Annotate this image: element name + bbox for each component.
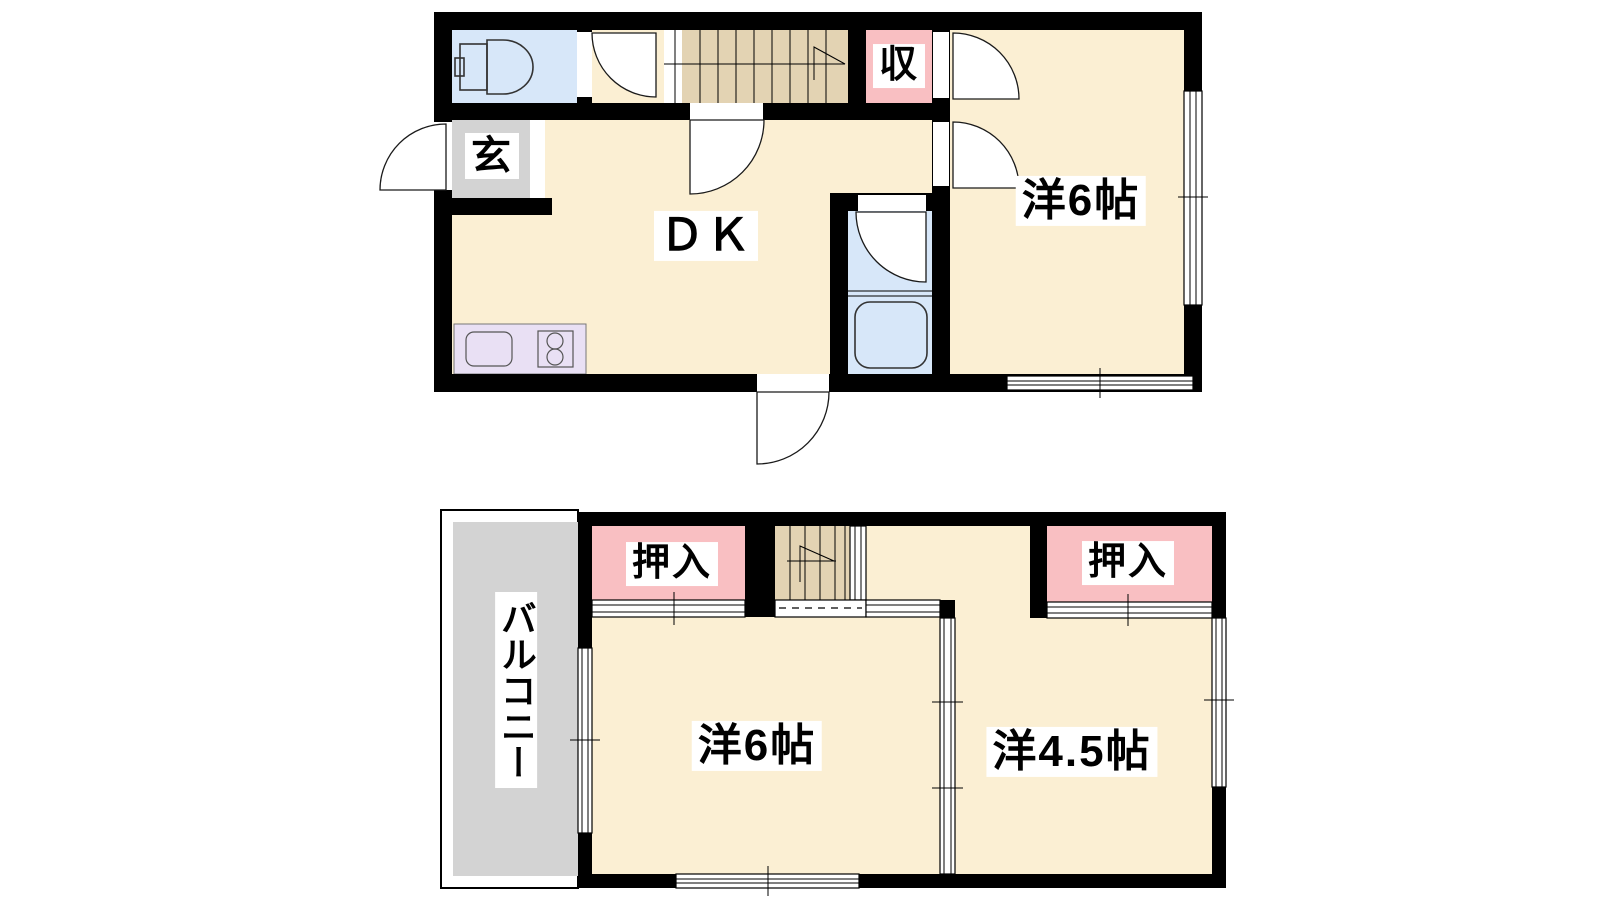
closet-right-sliding-door xyxy=(1047,602,1212,618)
western45-label: 洋4.5帖 xyxy=(986,727,1157,777)
western45-side-window xyxy=(1212,618,1226,787)
stair-rail-strip xyxy=(850,526,866,600)
staircase-first-floor xyxy=(682,30,848,103)
entrance-bottom-wall xyxy=(452,198,552,215)
staircase-second-floor xyxy=(775,526,850,600)
stairs-landing-strip xyxy=(664,30,682,103)
dk-label: ＤＫ xyxy=(654,211,758,261)
toilet-bottom-wall xyxy=(434,103,592,120)
entrance-label: 玄 xyxy=(465,133,519,179)
storage-label: 収 xyxy=(873,44,925,88)
closet-left-sliding-door xyxy=(592,600,745,617)
closet-right-label: 押入 xyxy=(1082,541,1174,585)
hall-sliding-door xyxy=(866,600,940,617)
western6-1f-label: 洋6帖 xyxy=(1016,176,1146,226)
first-floor xyxy=(380,12,1208,464)
closet-left-label: 押入 xyxy=(626,542,718,586)
back-door-swing xyxy=(757,392,829,464)
room-partition-sliding-door xyxy=(940,618,955,874)
entrance-step-strip xyxy=(530,118,545,198)
bedroom-side-window xyxy=(1184,91,1202,305)
closet-stairs-wall xyxy=(745,526,775,617)
bath-right-wall xyxy=(932,193,950,374)
partition-joint xyxy=(940,600,955,618)
storage-left-wall xyxy=(848,12,866,103)
hall-closet-wall xyxy=(1030,526,1047,618)
entrance-door-swing xyxy=(380,124,446,190)
balcony-label: バルコニー xyxy=(495,592,537,788)
floor-plan: 玄 ＤＫ 収 洋6帖 押入 押入 洋6帖 洋4.5帖 バルコニー xyxy=(0,0,1600,900)
western6-2f-label: 洋6帖 xyxy=(692,721,822,771)
bath-left-wall xyxy=(830,193,848,374)
hall-bottom-wall xyxy=(592,103,950,120)
